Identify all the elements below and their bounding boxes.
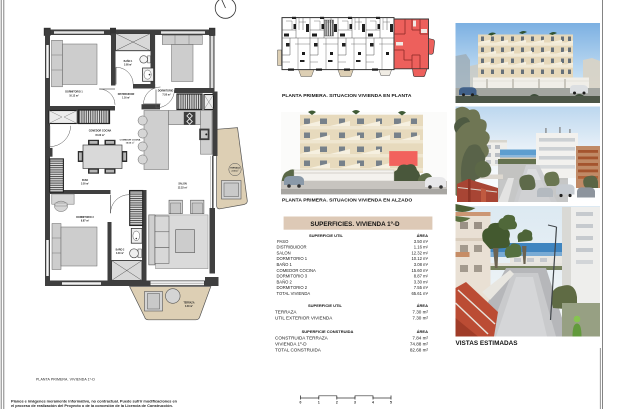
svg-text:1.16 m²: 1.16 m² xyxy=(414,245,429,250)
svg-text:5: 5 xyxy=(390,401,392,405)
svg-text:DISTRIBUIDOR: DISTRIBUIDOR xyxy=(277,245,307,250)
svg-text:TERRAZA: TERRAZA xyxy=(184,302,195,305)
svg-text:7.55 m²: 7.55 m² xyxy=(162,92,170,96)
svg-text:3.50 m²: 3.50 m² xyxy=(414,239,429,244)
svg-text:TOTAL CONSTRUIDA: TOTAL CONSTRUIDA xyxy=(275,348,322,353)
svg-text:TERRAZA: TERRAZA xyxy=(275,310,297,315)
svg-text:3.30 m²: 3.30 m² xyxy=(116,251,124,255)
svg-text:3.08 m²: 3.08 m² xyxy=(124,63,132,67)
svg-text:BAÑO 1: BAÑO 1 xyxy=(277,262,293,267)
svg-text:VIVIENDA 1º-D: VIVIENDA 1º-D xyxy=(275,342,307,347)
svg-text:el proceso de realización del: el proceso de realización del Proyecto o… xyxy=(11,404,173,408)
svg-text:0: 0 xyxy=(300,401,302,405)
svg-text:8.87 m²: 8.87 m² xyxy=(414,274,429,279)
svg-text:3.30 m²: 3.30 m² xyxy=(414,279,429,284)
svg-text:PLANTA PRIMERA. SITUACION VIVI: PLANTA PRIMERA. SITUACION VIVIENDA EN PL… xyxy=(282,93,412,99)
svg-text:15.60 m²: 15.60 m² xyxy=(411,268,428,273)
svg-text:ÁREA: ÁREA xyxy=(417,303,428,308)
svg-text:12.32 m²: 12.32 m² xyxy=(178,185,188,189)
svg-text:COMEDOR COCINA: COMEDOR COCINA xyxy=(277,268,317,273)
svg-text:DORMITORIO 3: DORMITORIO 3 xyxy=(277,274,308,279)
svg-text:PASO: PASO xyxy=(82,179,89,182)
svg-text:SALON: SALON xyxy=(277,251,291,256)
svg-text:82.68 m²: 82.68 m² xyxy=(410,348,429,353)
svg-text:1: 1 xyxy=(318,401,320,405)
svg-text:VISTAS ESTIMADAS: VISTAS ESTIMADAS xyxy=(456,340,519,347)
svg-text:DORMITORIO 3: DORMITORIO 3 xyxy=(76,216,94,219)
svg-text:7.55 m²: 7.55 m² xyxy=(414,285,429,290)
svg-text:UTIL EXTERIOR VIVIENDA: UTIL EXTERIOR VIVIENDA xyxy=(275,316,333,321)
svg-text:BAÑO 2: BAÑO 2 xyxy=(116,249,125,252)
svg-text:SUPERFICIE CONSTRUIDA: SUPERFICIE CONSTRUIDA xyxy=(302,329,354,334)
svg-text:3.08 m²: 3.08 m² xyxy=(414,262,429,267)
svg-text:74.88 m²: 74.88 m² xyxy=(410,342,429,347)
svg-text:PLANTA PRIMERA. VIVIENDA 1º-D: PLANTA PRIMERA. VIVIENDA 1º-D xyxy=(36,377,95,381)
svg-text:ÁREA: ÁREA xyxy=(417,233,428,238)
svg-text:ÁREA: ÁREA xyxy=(417,329,428,334)
svg-text:3: 3 xyxy=(354,401,356,405)
svg-text:3.50 m²: 3.50 m² xyxy=(81,182,89,186)
svg-text:TOTAL VIVIENDA: TOTAL VIVIENDA xyxy=(277,291,311,296)
svg-text:8.87 m²: 8.87 m² xyxy=(81,219,89,223)
svg-text:7.84 m²: 7.84 m² xyxy=(412,335,428,340)
svg-text:SUPERFICIE UTIL: SUPERFICIE UTIL xyxy=(309,233,344,238)
svg-text:BAÑO 2: BAÑO 2 xyxy=(277,279,293,284)
svg-text:BAÑO 1: BAÑO 1 xyxy=(124,60,133,63)
svg-text:TERRAZA: TERRAZA xyxy=(230,167,240,170)
svg-text:DORMITORIO 1: DORMITORIO 1 xyxy=(277,256,308,261)
svg-text:DORMITORIO 2: DORMITORIO 2 xyxy=(277,285,308,290)
svg-text:10.12 m²: 10.12 m² xyxy=(69,93,79,97)
svg-text:SUPERFICIES. VIVIENDA 1º-D: SUPERFICIES. VIVIENDA 1º-D xyxy=(310,221,400,228)
svg-text:10.12 m²: 10.12 m² xyxy=(411,256,428,261)
svg-text:12.32 m²: 12.32 m² xyxy=(411,251,428,256)
svg-text:15.60 m²: 15.60 m² xyxy=(95,133,105,137)
svg-text:4: 4 xyxy=(372,401,374,405)
svg-text:COMEDOR COCINA: COMEDOR COCINA xyxy=(89,130,112,133)
svg-text:2: 2 xyxy=(336,401,338,405)
svg-text:PLANTA PRIMERA. SITUACION VIVI: PLANTA PRIMERA. SITUACION VIVIENDA EN AL… xyxy=(282,198,412,204)
svg-text:DORMITORIO 2: DORMITORIO 2 xyxy=(158,90,176,93)
svg-text:DISTRIBUIDOR: DISTRIBUIDOR xyxy=(118,94,135,96)
svg-text:COMEDOR COCINA: COMEDOR COCINA xyxy=(120,138,141,141)
svg-text:7.30 m²: 7.30 m² xyxy=(412,310,428,315)
svg-text:7.30 m²: 7.30 m² xyxy=(412,316,428,321)
svg-text:15.60 m²: 15.60 m² xyxy=(126,142,135,145)
svg-text:DORMITORIO 1: DORMITORIO 1 xyxy=(65,91,83,94)
svg-text:CONSTRUIDA TERRAZA: CONSTRUIDA TERRAZA xyxy=(275,335,329,340)
svg-text:2.04 m²: 2.04 m² xyxy=(232,170,239,173)
svg-text:Planos e imágenes meramente in: Planos e imágenes meramente informativo,… xyxy=(11,399,178,403)
svg-text:PASO: PASO xyxy=(277,239,289,244)
svg-text:SUPERFICIE UTIL: SUPERFICIE UTIL xyxy=(308,303,343,308)
svg-text:SALON: SALON xyxy=(178,183,187,186)
svg-text:1.16 m²: 1.16 m² xyxy=(122,95,130,99)
svg-text:65.61 m²: 65.61 m² xyxy=(411,291,428,296)
